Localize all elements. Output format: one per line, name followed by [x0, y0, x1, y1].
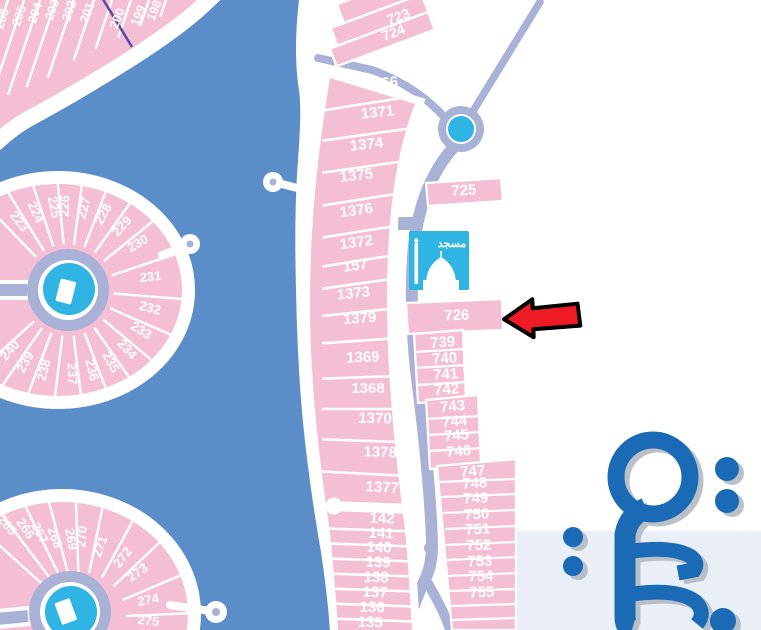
map-canvas: 206205204203202201200199198 223224225226… — [0, 0, 761, 630]
plot-label-725: 725 — [451, 181, 477, 199]
road-branch-right — [425, 578, 450, 630]
turnaround-bulb — [326, 498, 343, 515]
plot-label-135: 135 — [357, 614, 383, 630]
plot-label-226: 226 — [57, 195, 72, 217]
minaret — [415, 243, 419, 284]
mosque-driveway — [398, 217, 413, 230]
plot-label-1378: 1378 — [363, 443, 397, 461]
roundabout-pond — [448, 116, 474, 142]
plot-label-1370: 1370 — [358, 410, 392, 428]
plot-label-1373: 1373 — [336, 283, 371, 303]
plot-label-237: 237 — [65, 363, 81, 385]
arrow-annotation — [503, 298, 580, 339]
red-arrow-icon — [503, 298, 580, 339]
plot-label-1368: 1368 — [351, 380, 384, 397]
central-strip: 1366137113741375137613721571373137913691… — [310, 73, 418, 630]
plot-label-157: 157 — [342, 255, 369, 275]
plot-label-726: 726 — [444, 307, 470, 325]
roundabout — [438, 106, 484, 152]
plot-label-1374: 1374 — [349, 134, 385, 154]
plot-label-231: 231 — [139, 268, 162, 285]
pier-icon — [306, 10, 334, 38]
plot-label-270: 270 — [73, 525, 89, 548]
plot-label-1371: 1371 — [360, 102, 395, 122]
plot-label-755: 755 — [469, 584, 495, 602]
plot-map: 206205204203202201200199198 223224225226… — [0, 0, 761, 630]
dead-end-street — [330, 506, 414, 509]
plot-label-1379: 1379 — [342, 309, 376, 328]
road-north — [467, 2, 540, 121]
plot-label-742: 742 — [434, 380, 460, 399]
mosque-base — [423, 280, 459, 290]
plot-label-275: 275 — [137, 612, 160, 629]
plot-label-746: 746 — [445, 442, 471, 461]
island-entry-road — [0, 616, 28, 620]
plot-label-1369: 1369 — [346, 348, 380, 366]
mosque-label: مسجد — [438, 238, 467, 250]
plot-label-1377: 1377 — [365, 478, 399, 497]
road-nub — [424, 542, 436, 554]
plot-label-1366: 1366 — [364, 73, 399, 93]
mosque: مسجد — [409, 231, 469, 290]
